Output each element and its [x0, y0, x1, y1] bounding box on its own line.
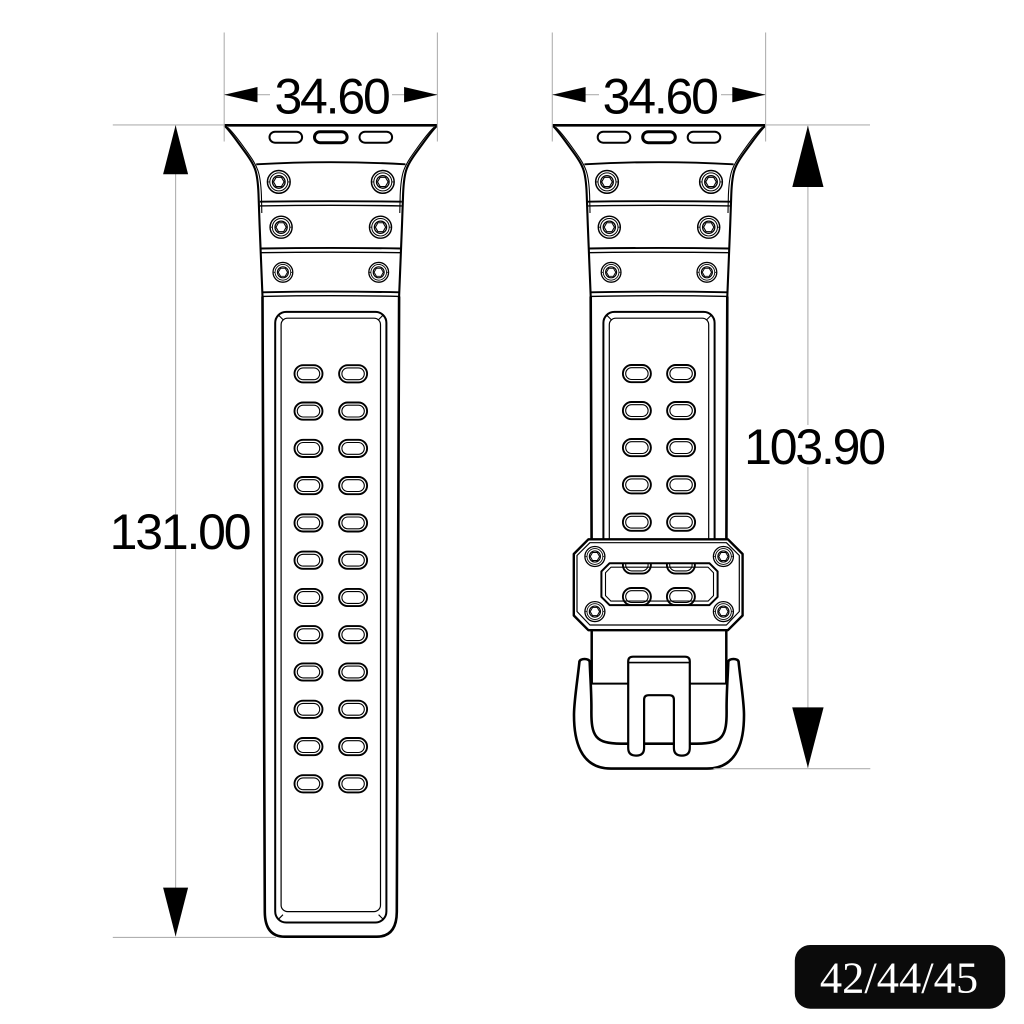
svg-text:131.00: 131.00 — [110, 504, 250, 560]
svg-text:42/44/45: 42/44/45 — [820, 953, 978, 1003]
svg-text:103.90: 103.90 — [744, 419, 884, 475]
svg-text:34.60: 34.60 — [274, 69, 389, 125]
svg-text:34.60: 34.60 — [603, 69, 718, 125]
